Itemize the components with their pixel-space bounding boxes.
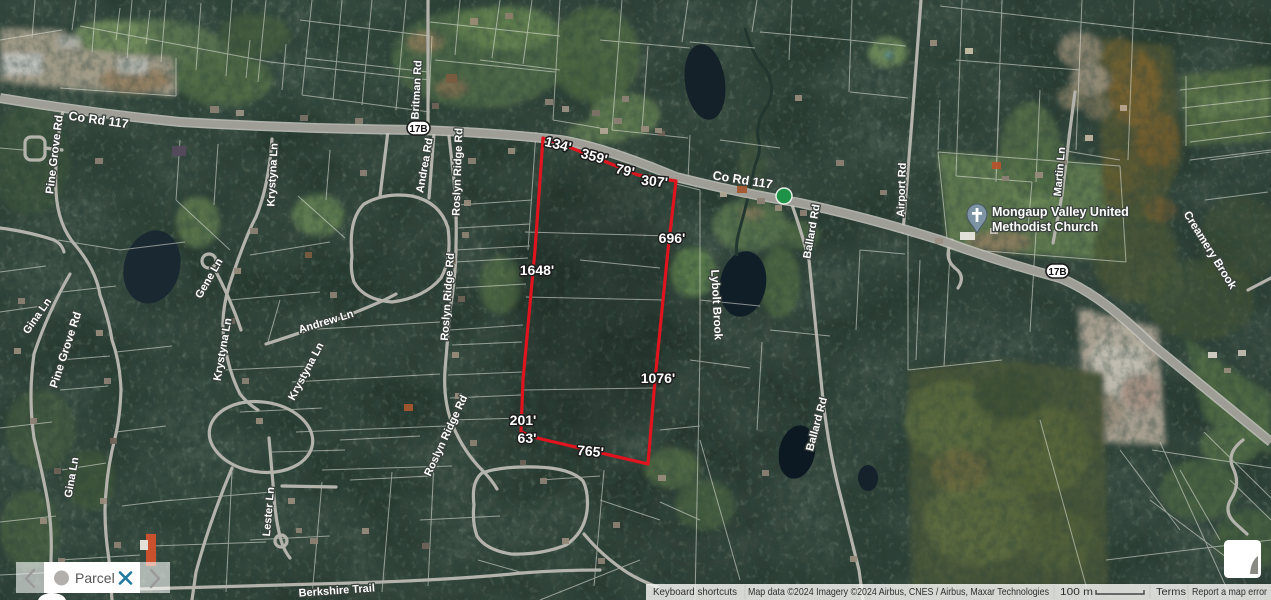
svg-text:1648': 1648' (520, 262, 554, 278)
svg-text:63': 63' (518, 430, 537, 446)
svg-text:Map data ©2024 Imagery ©2024 A: Map data ©2024 Imagery ©2024 Airbus, CNE… (748, 586, 1049, 598)
svg-text:696': 696' (659, 230, 686, 246)
svg-text:Methodist Church: Methodist Church (992, 220, 1098, 234)
svg-text:17B: 17B (409, 124, 427, 135)
svg-text:765': 765' (576, 442, 604, 460)
svg-text:307': 307' (640, 172, 668, 191)
svg-text:201': 201' (510, 412, 537, 428)
svg-text:Terms: Terms (1156, 586, 1186, 598)
svg-text:Airport Rd: Airport Rd (895, 163, 909, 218)
svg-text:Keyboard shortcuts: Keyboard shortcuts (653, 586, 737, 598)
svg-text:17B: 17B (1048, 267, 1066, 278)
svg-text:Report a map error: Report a map error (1192, 586, 1267, 598)
svg-text:Mongaup Valley United: Mongaup Valley United (992, 205, 1129, 219)
svg-text:Parcel: Parcel (75, 570, 115, 586)
svg-text:1076': 1076' (641, 370, 675, 386)
svg-text:100 m: 100 m (1060, 586, 1093, 598)
